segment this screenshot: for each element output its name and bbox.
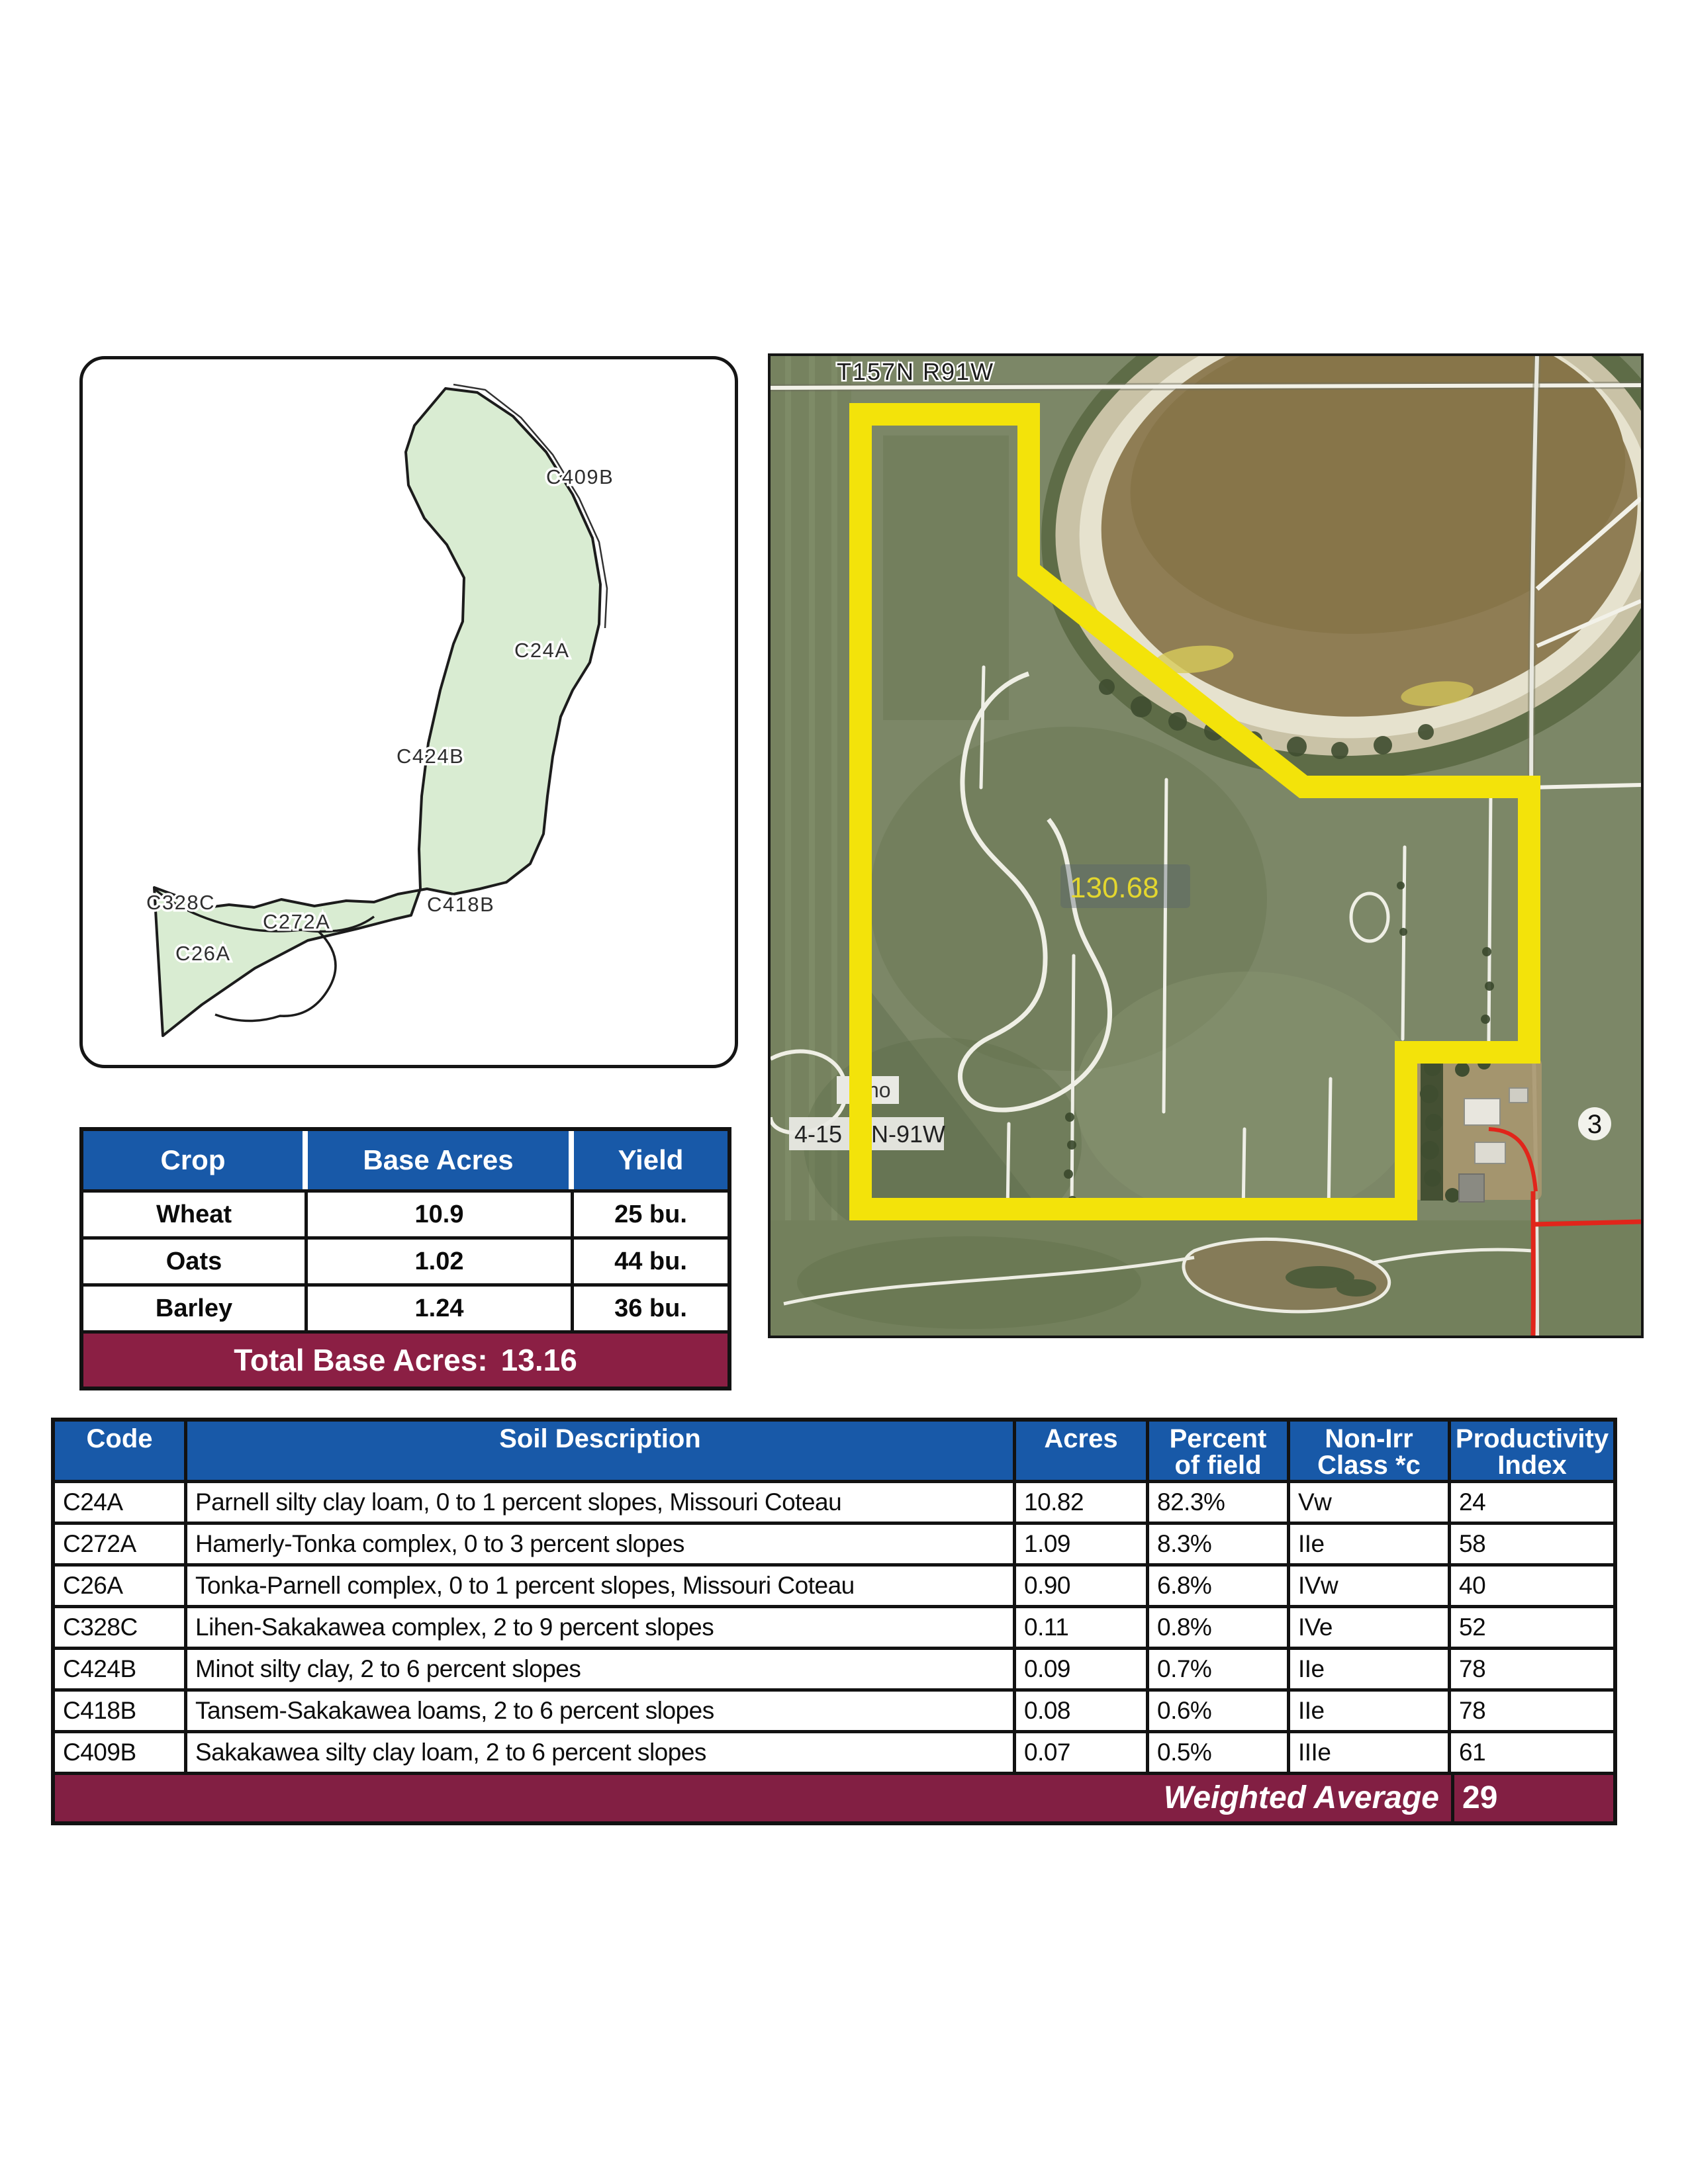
- soil-header-acres: Acres: [1016, 1422, 1149, 1480]
- header-line: Percent: [1149, 1426, 1287, 1452]
- soil-cell-percent: 0.8%: [1149, 1608, 1290, 1647]
- soil-label-c272a: C272A: [263, 910, 330, 933]
- soil-cell-description: Tonka-Parnell complex, 0 to 1 percent sl…: [187, 1567, 1016, 1605]
- soil-cell-percent: 8.3%: [1149, 1525, 1290, 1563]
- soil-cell-percent: 0.7%: [1149, 1650, 1290, 1688]
- soil-cell-code: C418B: [55, 1692, 187, 1730]
- crop-row-barley: Barley 1.24 36 bu.: [83, 1283, 727, 1330]
- soil-row: C424B Minot silty clay, 2 to 6 percent s…: [55, 1647, 1613, 1688]
- soil-cell-code: C272A: [55, 1525, 187, 1563]
- soil-cell-code: C424B: [55, 1650, 187, 1688]
- soil-cell-acres: 10.82: [1016, 1483, 1149, 1522]
- crop-cell: Wheat: [83, 1193, 308, 1236]
- soil-cell-description: Hamerly-Tonka complex, 0 to 3 percent sl…: [187, 1525, 1016, 1563]
- crop-cell: 36 bu.: [574, 1287, 727, 1330]
- crop-cell: 44 bu.: [574, 1240, 727, 1283]
- soil-row: C24A Parnell silty clay loam, 0 to 1 per…: [55, 1480, 1613, 1522]
- soil-cell-class: IIe: [1290, 1692, 1451, 1730]
- soil-cell-code: C328C: [55, 1608, 187, 1647]
- crop-header-crop: Crop: [83, 1131, 308, 1189]
- soil-cell-index: 24: [1451, 1483, 1613, 1522]
- soil-header-description: Soil Description: [187, 1422, 1016, 1480]
- field-line: [1529, 785, 1641, 788]
- soil-row: C272A Hamerly-Tonka complex, 0 to 3 perc…: [55, 1522, 1613, 1563]
- crop-row-oats: Oats 1.02 44 bu.: [83, 1236, 727, 1283]
- soil-row: C328C Lihen-Sakakawea complex, 2 to 9 pe…: [55, 1605, 1613, 1647]
- page: C409B C24A C424B C328C C272A C26A C418B: [0, 0, 1688, 2184]
- soil-cell-acres: 0.07: [1016, 1733, 1149, 1772]
- header-line: Soil Description: [187, 1426, 1013, 1452]
- soil-cell-class: IIe: [1290, 1650, 1451, 1688]
- header-line: Acres: [1016, 1426, 1146, 1452]
- crop-cell: 1.02: [308, 1240, 574, 1283]
- crop-table: Crop Base Acres Yield Wheat 10.9 25 bu. …: [79, 1127, 731, 1390]
- soil-label-c418b: C418B: [427, 893, 494, 916]
- soil-cell-index: 78: [1451, 1650, 1613, 1688]
- soil-cell-acres: 0.08: [1016, 1692, 1149, 1730]
- total-base-acres-label: Total Base Acres:: [234, 1343, 487, 1377]
- soil-table: Code Soil Description Acres Percentof fi…: [51, 1418, 1617, 1825]
- soil-label-c24a: C24A: [514, 639, 570, 662]
- soil-cell-class: IIe: [1290, 1525, 1451, 1563]
- soil-cell-description: Lihen-Sakakawea complex, 2 to 9 percent …: [187, 1608, 1016, 1647]
- soil-row: C418B Tansem-Sakakawea loams, 2 to 6 per…: [55, 1688, 1613, 1730]
- crop-table-footer: Total Base Acres:13.16: [83, 1330, 727, 1387]
- soil-header-percent: Percentof field: [1149, 1422, 1290, 1480]
- aerial-photo: T157N R91W 130.68 ho 4-15 N-91W 3: [771, 356, 1641, 1336]
- soil-table-header: Code Soil Description Acres Percentof fi…: [55, 1422, 1613, 1480]
- soil-cell-percent: 0.5%: [1149, 1733, 1290, 1772]
- soil-cell-percent: 6.8%: [1149, 1567, 1290, 1605]
- soil-cell-class: Vw: [1290, 1483, 1451, 1522]
- soil-label-c424b: C424B: [397, 745, 464, 768]
- soil-table-footer: Weighted Average 29: [55, 1772, 1613, 1821]
- field-patch: [883, 435, 1009, 720]
- crop-header-base-acres: Base Acres: [308, 1131, 574, 1189]
- road-north: [771, 385, 1641, 388]
- header-line: Index: [1451, 1452, 1613, 1479]
- soil-map-drawing: C409B C24A C424B C328C C272A C26A C418B: [83, 359, 735, 1065]
- section-label-suffix: N-91W: [871, 1120, 945, 1148]
- soil-cell-acres: 0.09: [1016, 1650, 1149, 1688]
- soil-cell-class: IIIe: [1290, 1733, 1451, 1772]
- soil-cell-acres: 0.11: [1016, 1608, 1149, 1647]
- field-streak: [809, 356, 815, 1336]
- soil-cell-description: Sakakawea silty clay loam, 2 to 6 percen…: [187, 1733, 1016, 1772]
- soil-cell-index: 52: [1451, 1608, 1613, 1647]
- soil-map-panel: C409B C24A C424B C328C C272A C26A C418B: [79, 356, 738, 1068]
- field-patch: [1075, 972, 1419, 1223]
- soil-cell-percent: 82.3%: [1149, 1483, 1290, 1522]
- header-line: Class *c: [1290, 1452, 1448, 1479]
- crop-table-header: Crop Base Acres Yield: [83, 1131, 727, 1189]
- soil-label-c328c: C328C: [146, 891, 215, 914]
- weighted-average-label: Weighted Average: [55, 1775, 1454, 1821]
- soil-cell-code: C24A: [55, 1483, 187, 1522]
- header-line: Productivity: [1451, 1426, 1613, 1452]
- crop-row-wheat: Wheat 10.9 25 bu.: [83, 1189, 727, 1236]
- field-outline: [154, 388, 600, 1036]
- crop-cell: 25 bu.: [574, 1193, 727, 1236]
- header-line: of field: [1149, 1452, 1287, 1479]
- soil-cell-index: 58: [1451, 1525, 1613, 1563]
- soil-label-c26a: C26A: [175, 942, 231, 965]
- soil-cell-class: IVe: [1290, 1608, 1451, 1647]
- crop-cell: Oats: [83, 1240, 308, 1283]
- soil-cell-description: Minot silty clay, 2 to 6 percent slopes: [187, 1650, 1016, 1688]
- soil-header-nonirr-class: Non-IrrClass *c: [1290, 1422, 1451, 1480]
- soil-cell-index: 78: [1451, 1692, 1613, 1730]
- crop-cell: Barley: [83, 1287, 308, 1330]
- soil-row: C26A Tonka-Parnell complex, 0 to 1 perce…: [55, 1563, 1613, 1605]
- header-line: Code: [55, 1426, 184, 1452]
- header-line: Non-Irr: [1290, 1426, 1448, 1452]
- soil-cell-index: 61: [1451, 1733, 1613, 1772]
- soil-label-c409b: C409B: [546, 465, 614, 488]
- soil-row: C409B Sakakawea silty clay loam, 2 to 6 …: [55, 1730, 1613, 1772]
- crop-cell: 10.9: [308, 1193, 574, 1236]
- field-patch: [797, 1236, 1141, 1329]
- soil-cell-percent: 0.6%: [1149, 1692, 1290, 1730]
- soil-cell-class: IVw: [1290, 1567, 1451, 1605]
- soil-cell-code: C26A: [55, 1567, 187, 1605]
- soil-cell-acres: 1.09: [1016, 1525, 1149, 1563]
- soil-cell-index: 40: [1451, 1567, 1613, 1605]
- soil-cell-description: Tansem-Sakakawea loams, 2 to 6 percent s…: [187, 1692, 1016, 1730]
- south-wetland-dark: [1336, 1279, 1376, 1297]
- soil-cell-acres: 0.90: [1016, 1567, 1149, 1605]
- section-label-prefix: 4-15: [794, 1120, 842, 1148]
- soil-header-code: Code: [55, 1422, 187, 1480]
- soil-header-productivity: ProductivityIndex: [1451, 1422, 1613, 1480]
- total-base-acres-value: 13.16: [501, 1343, 577, 1377]
- field-streak: [785, 356, 791, 1336]
- crop-header-yield: Yield: [574, 1131, 727, 1189]
- soil-cell-description: Parnell silty clay loam, 0 to 1 percent …: [187, 1483, 1016, 1522]
- township-label: T157N R91W: [837, 358, 994, 385]
- crop-cell: 1.24: [308, 1287, 574, 1330]
- weighted-average-value: 29: [1454, 1775, 1613, 1821]
- section-number: 3: [1587, 1110, 1602, 1139]
- soil-cell-code: C409B: [55, 1733, 187, 1772]
- area-label: 130.68: [1070, 872, 1159, 904]
- aerial-photo-panel: T157N R91W 130.68 ho 4-15 N-91W 3: [768, 353, 1644, 1338]
